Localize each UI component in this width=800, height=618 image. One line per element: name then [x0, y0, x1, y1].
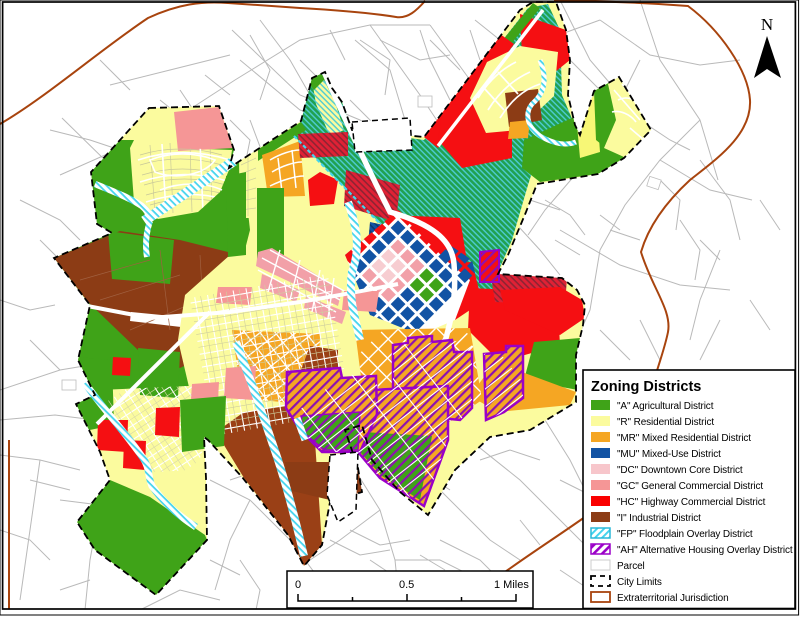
svg-text:0: 0 — [295, 579, 301, 591]
svg-text:0.5: 0.5 — [399, 579, 414, 591]
svg-text:1 Miles: 1 Miles — [494, 579, 529, 591]
svg-text:"FP" Floodplain Overlay Distri: "FP" Floodplain Overlay District — [617, 529, 753, 540]
svg-text:"R" Residential District: "R" Residential District — [617, 417, 714, 428]
svg-text:Parcel: Parcel — [617, 561, 645, 572]
svg-text:"GC" General Commercial Distri: "GC" General Commercial District — [617, 481, 763, 492]
svg-text:"AH" Alternative Housing Overl: "AH" Alternative Housing Overlay Distric… — [617, 545, 793, 556]
svg-text:"A" Agricultural District: "A" Agricultural District — [617, 401, 714, 412]
svg-text:"MU" Mixed-Use District: "MU" Mixed-Use District — [617, 449, 721, 460]
svg-text:Zoning Districts: Zoning Districts — [591, 379, 701, 395]
svg-text:Extraterritorial Jurisdiction: Extraterritorial Jurisdiction — [617, 593, 729, 604]
svg-text:"DC" Downtown Core District: "DC" Downtown Core District — [617, 465, 743, 476]
svg-text:"MR" Mixed Residential Distric: "MR" Mixed Residential District — [617, 433, 751, 444]
svg-text:"HC" Highway Commercial Distri: "HC" Highway Commercial District — [617, 497, 766, 508]
svg-text:City Limits: City Limits — [617, 577, 662, 588]
svg-text:"I" Industrial District: "I" Industrial District — [617, 513, 701, 524]
svg-text:N: N — [761, 15, 773, 34]
